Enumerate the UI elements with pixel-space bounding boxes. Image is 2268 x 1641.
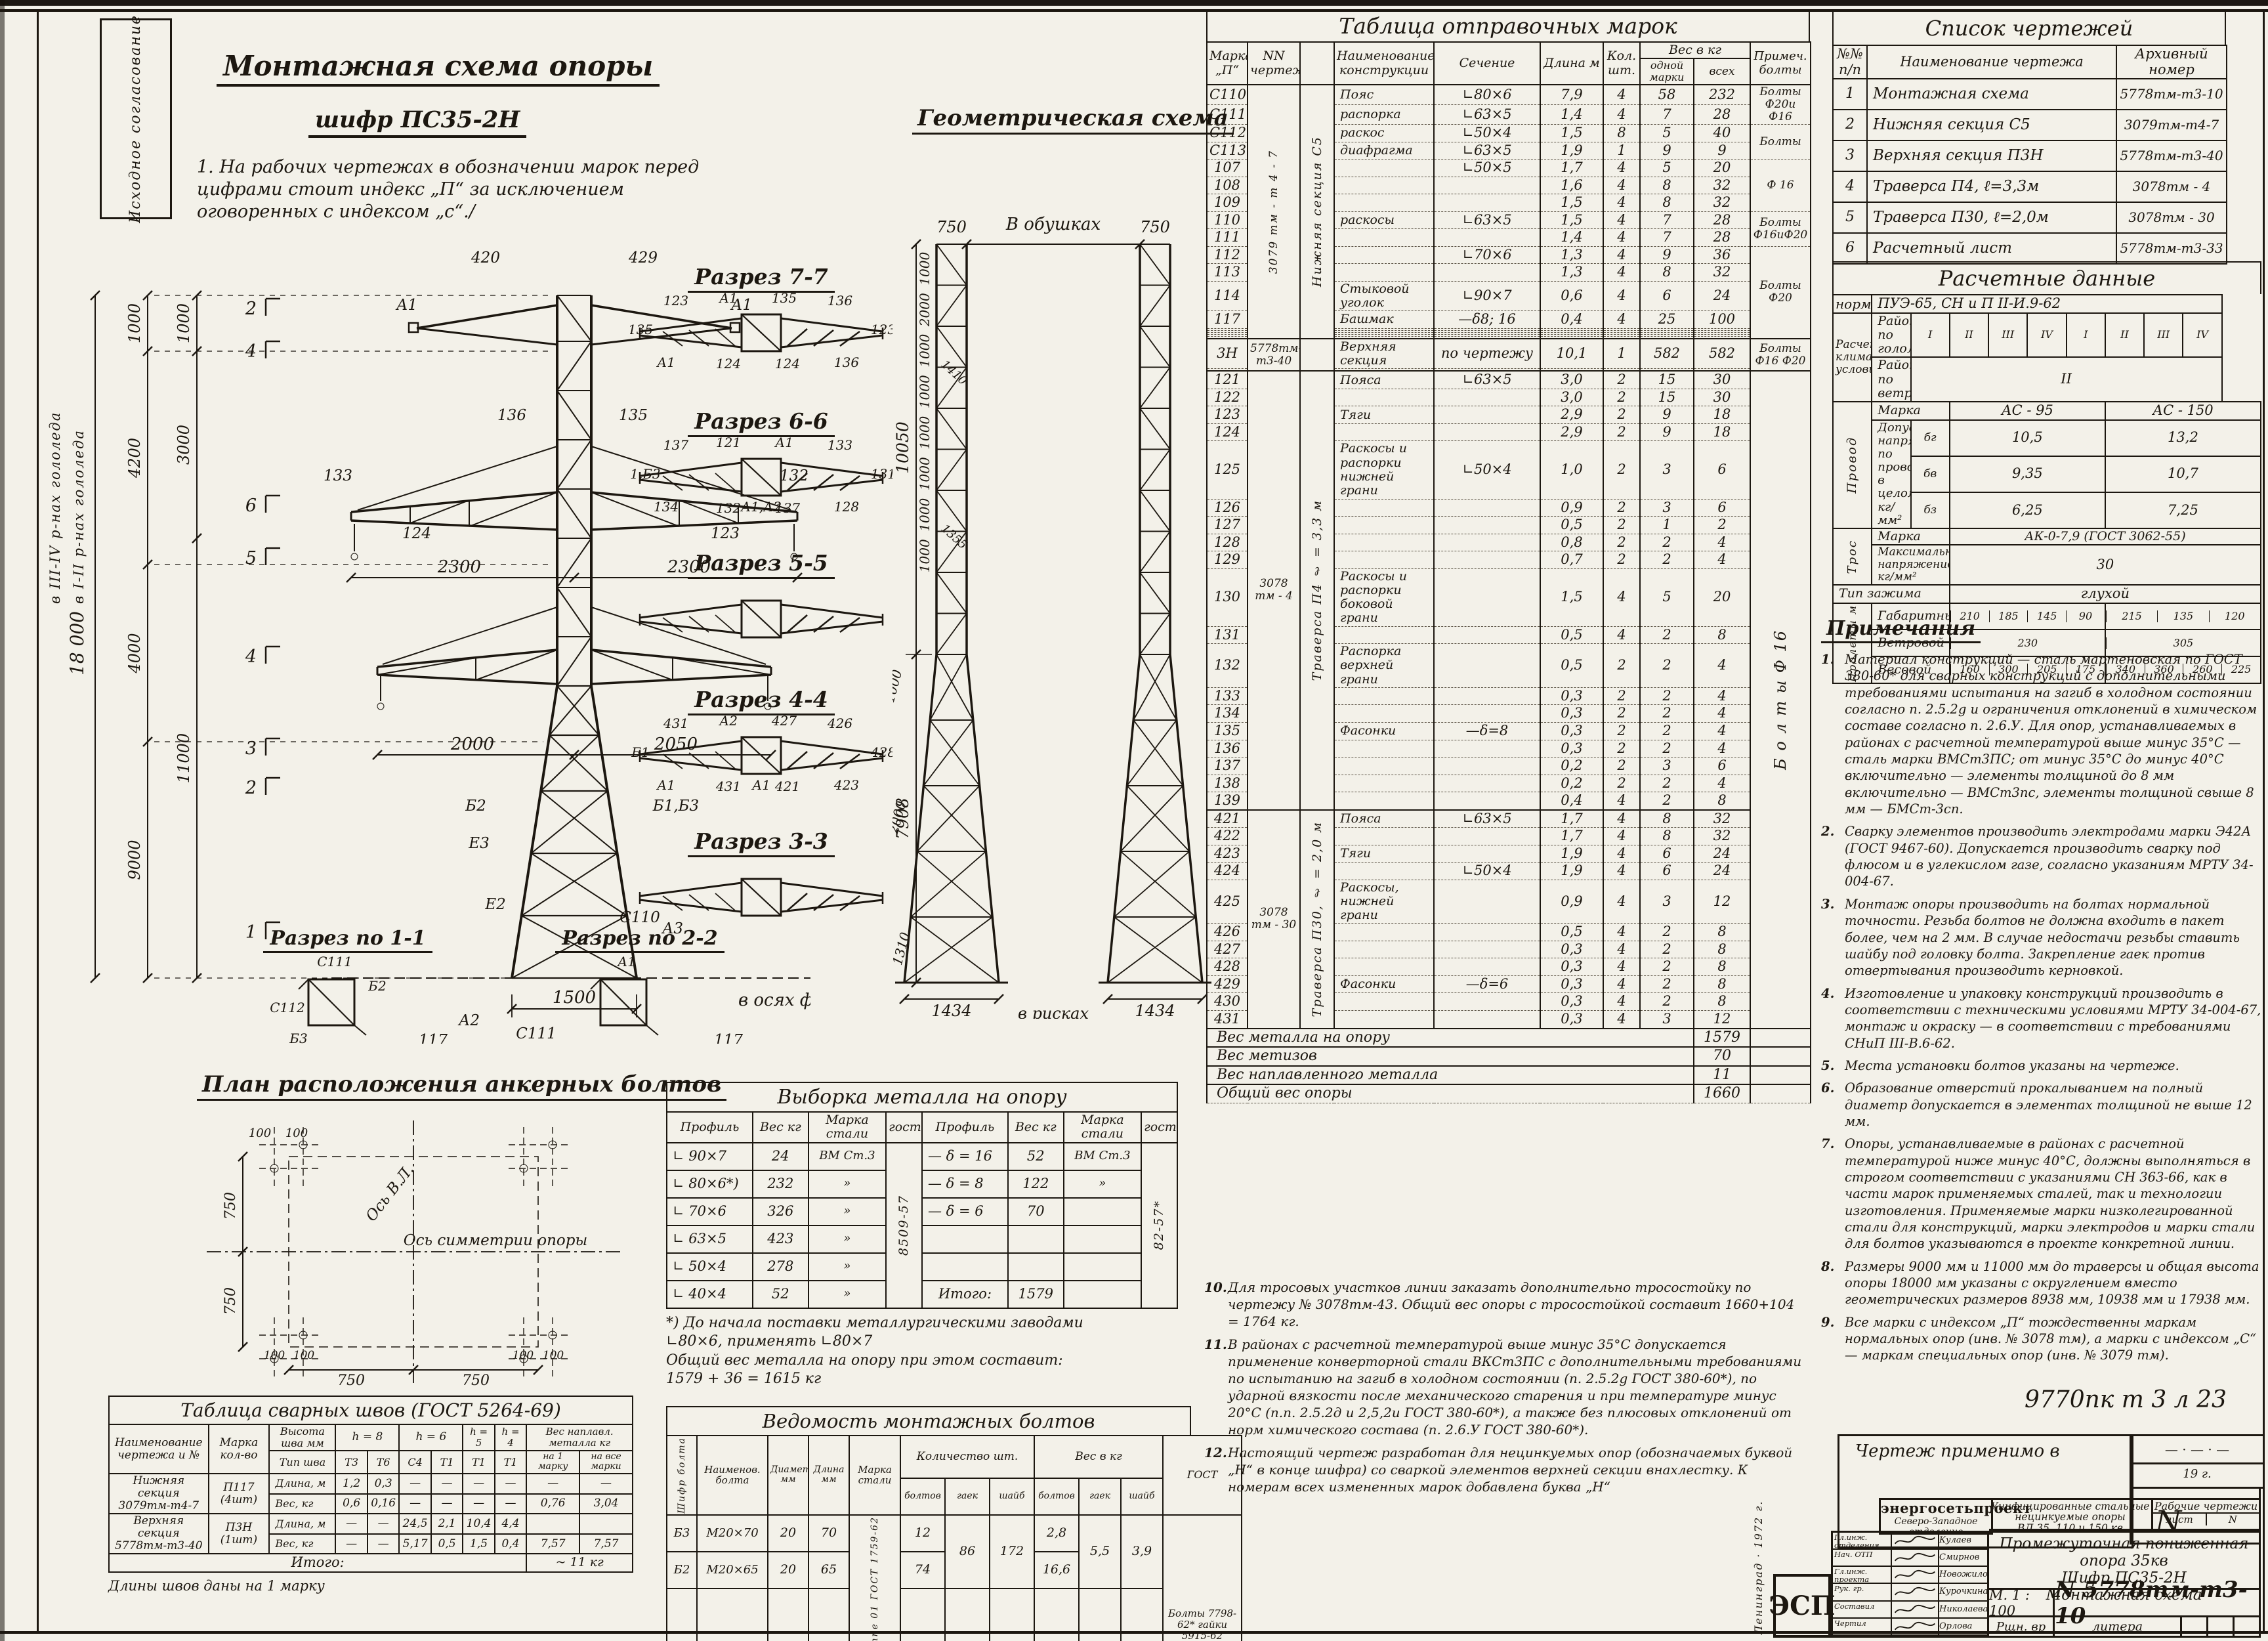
table-cell: Ф 16 bbox=[1750, 160, 1811, 212]
table-cell: на все марки bbox=[579, 1451, 633, 1474]
dim-label: 750 bbox=[1140, 218, 1170, 236]
metal-table-title: Выборка металла на опору bbox=[666, 1082, 1178, 1111]
dim-label: 1000 bbox=[917, 416, 933, 450]
table-cell: раскос bbox=[1334, 125, 1434, 142]
table-cell: 110 bbox=[1207, 211, 1248, 229]
table-cell: ВМ Ст.3 bbox=[808, 1143, 886, 1170]
dim-label: 426 bbox=[827, 715, 852, 731]
table-cell: 7,25 bbox=[2105, 492, 2261, 528]
table-cell: 0,16 bbox=[367, 1494, 399, 1514]
signature-scribble bbox=[1892, 1550, 1939, 1566]
table-cell: 70 bbox=[1694, 1047, 1750, 1066]
dim-label: А2 bbox=[718, 713, 738, 729]
dim-label: 1310 bbox=[892, 930, 913, 967]
table-row: А2М16×551655522505006,18,45,7 bbox=[667, 1588, 1242, 1641]
table-cell: 5 bbox=[1640, 160, 1694, 177]
table-cell: III bbox=[1988, 313, 2027, 358]
table-cell: 2 bbox=[1603, 517, 1640, 534]
table-cell: 4 bbox=[1603, 281, 1640, 311]
table-cell: 107 bbox=[1207, 160, 1248, 177]
summary-row: Вес наплавленного металла11 bbox=[1207, 1066, 1811, 1085]
table-cell: 4 bbox=[1603, 160, 1640, 177]
table-cell: 7 bbox=[1640, 105, 1694, 125]
table-cell: 100 bbox=[1694, 311, 1750, 329]
table-cell bbox=[1434, 423, 1540, 441]
dim-label: 124 bbox=[402, 525, 431, 542]
table-cell bbox=[1434, 740, 1540, 757]
table-cell: 131 bbox=[1207, 626, 1248, 644]
table-cell bbox=[1434, 499, 1540, 517]
dim-label: 135 bbox=[630, 322, 653, 337]
table-cell: гост bbox=[886, 1112, 922, 1143]
table-cell: 2 bbox=[1603, 423, 1640, 441]
dim-label: 2000 bbox=[917, 293, 933, 327]
table-cell: 2 bbox=[1603, 775, 1640, 792]
table-cell: С110 bbox=[1207, 85, 1248, 105]
table-cell: 3Н bbox=[1207, 339, 1248, 369]
dim-label: 132 bbox=[716, 500, 741, 516]
table-cell: 425 bbox=[1207, 880, 1248, 924]
table-cell: 108 bbox=[1207, 177, 1248, 194]
table-cell: 121 bbox=[1207, 371, 1248, 389]
table-cell: 4 bbox=[1603, 924, 1640, 941]
table-cell: 65 bbox=[808, 1552, 849, 1588]
table-cell: Б о л т ы Ф 16 bbox=[1750, 371, 1811, 1028]
table-cell: 74 bbox=[900, 1552, 945, 1588]
litera-sub3 bbox=[2235, 1617, 2261, 1638]
table-cell bbox=[1334, 757, 1434, 775]
table-cell: ∟ 90×7 bbox=[667, 1143, 753, 1170]
metal-table-wrap: Выборка металла на опору ПрофильВес кгМа… bbox=[666, 1082, 1178, 1389]
dim-label: 124 bbox=[716, 356, 741, 372]
table-cell: 2 bbox=[1640, 626, 1694, 644]
table-cell: — bbox=[431, 1474, 463, 1494]
notes-title: Примечания bbox=[1821, 617, 2262, 643]
sheet-n: N bbox=[2207, 1514, 2259, 1525]
table-cell: Распорка верхней грани bbox=[1334, 644, 1434, 688]
table-cell: ∟63×5 bbox=[1434, 211, 1540, 229]
section-block: Разрез 3-3 bbox=[630, 828, 892, 939]
table-cell: 0,3 bbox=[1540, 722, 1603, 740]
table-cell: 2 bbox=[1640, 705, 1694, 723]
table-cell: Профиль bbox=[922, 1112, 1008, 1143]
table-cell: II bbox=[1911, 357, 2222, 402]
table-cell: 8 bbox=[1640, 264, 1694, 282]
cipher-title: шифр ПС35-2Н bbox=[308, 106, 526, 138]
note-item: 12.Настоящий чертеж разработан для нецин… bbox=[1204, 1444, 1805, 1495]
table-cell: 0,76 bbox=[526, 1494, 579, 1514]
table-cell: болтов bbox=[900, 1478, 945, 1515]
table-cell: Трос bbox=[1833, 528, 1872, 585]
section-block: Разрез 6-6137121А1133134132137128Б1,Б313… bbox=[630, 408, 892, 519]
table-row: ∟ 63×5423» bbox=[667, 1225, 1177, 1253]
table-cell: 4 bbox=[1694, 722, 1750, 740]
table-cell bbox=[1434, 177, 1540, 194]
table-row: Верхняя секция 5778тм-т3-40П3Н (1шт)Длин… bbox=[109, 1514, 633, 1534]
dim-label: Б2 bbox=[465, 798, 486, 815]
dim-label: 2 bbox=[245, 299, 257, 319]
table-cell: 1 bbox=[1603, 339, 1640, 369]
table-cell: 3,9 bbox=[1121, 1515, 1163, 1588]
table-cell: 2 bbox=[1640, 775, 1694, 792]
table-cell: по чертежу bbox=[1434, 339, 1540, 369]
table-cell bbox=[1434, 626, 1540, 644]
table-cell: h = 6 bbox=[399, 1424, 463, 1451]
table-cell: болтов bbox=[1034, 1478, 1079, 1515]
table-cell bbox=[1750, 1029, 1811, 1048]
table-cell: 1,4 bbox=[1540, 105, 1603, 125]
table-cell bbox=[1334, 705, 1434, 723]
table-cell bbox=[1434, 828, 1540, 845]
geometric-title: Геометрическая схема bbox=[912, 105, 1234, 135]
table-cell: АС - 150 bbox=[2105, 402, 2261, 420]
table-cell: Длина, м bbox=[269, 1474, 335, 1494]
table-cell: 126 bbox=[1207, 499, 1248, 517]
table-cell: 4 bbox=[1603, 246, 1640, 264]
table-row: 1Монтажная схема5778тм-т3-10 bbox=[1833, 79, 2227, 110]
table-cell: Допускаемые напряжения по проводу в цело… bbox=[1872, 420, 1910, 528]
table-cell: 2 bbox=[1640, 534, 1694, 551]
table-cell: 18 bbox=[1694, 423, 1750, 441]
table-cell: 2 bbox=[1603, 757, 1640, 775]
dim-label: Б3 bbox=[289, 1031, 307, 1046]
table-cell bbox=[1434, 924, 1540, 941]
shipping-table-title: Таблица отправочных марок bbox=[1206, 9, 1810, 41]
table-cell: 9 bbox=[1640, 246, 1694, 264]
table-cell: 0,5 bbox=[1540, 924, 1603, 941]
table-cell: 128 bbox=[1207, 534, 1248, 551]
org-box: энергосетьпроект Северо-Западное отделен… bbox=[1879, 1498, 1993, 1535]
dim-label: 2300 bbox=[437, 557, 481, 577]
table-row: 4213078 тм - 30Траверса П30, ℓ = 2,0 мПо… bbox=[1207, 810, 1811, 828]
dim-label: Е2 bbox=[484, 896, 505, 913]
table-cell: Район по ветру bbox=[1872, 357, 1910, 402]
table-cell: ∟ 63×5 bbox=[667, 1225, 753, 1253]
table-cell: 4 bbox=[1603, 626, 1640, 644]
org-name: энергосетьпроект bbox=[1881, 1500, 1991, 1516]
table-cell: 6 bbox=[1640, 845, 1694, 863]
drawings-list-title: Список чертежей bbox=[1832, 11, 2226, 45]
dim-label: 100 bbox=[264, 1349, 285, 1362]
table-cell: 7,57 bbox=[579, 1534, 633, 1554]
table-cell: №№ п/п bbox=[1833, 45, 1867, 79]
frame-left bbox=[37, 9, 39, 1631]
table-cell bbox=[1334, 423, 1434, 441]
table-cell: 10,7 bbox=[2105, 456, 2261, 492]
table-cell: Траверса П30, ℓ = 2,0 м bbox=[1300, 810, 1334, 1029]
table-cell: А2 bbox=[667, 1588, 697, 1641]
table-cell: Шифр болта bbox=[667, 1436, 697, 1515]
table-cell: гост bbox=[1141, 1112, 1177, 1143]
table-cell: 136 bbox=[1207, 740, 1248, 757]
table-cell: 2 bbox=[1603, 389, 1640, 406]
dim-label: 1000 bbox=[917, 539, 933, 572]
table-cell: Примеч. болты bbox=[1750, 42, 1811, 85]
table-cell: ГОСТ bbox=[1163, 1436, 1242, 1515]
table-cell: 2 bbox=[1640, 941, 1694, 958]
table-cell: 2 bbox=[1640, 924, 1694, 941]
table-cell: Траверса П4, ℓ=3,3м bbox=[1867, 171, 2116, 202]
signature-grid: Гл.инж. отделенияКулаевНач. ОТПСмирновГл… bbox=[1831, 1531, 1989, 1638]
table-cell: 3079 тм - т 4 - 7 bbox=[1248, 85, 1300, 339]
table-cell: 1,6 bbox=[1540, 177, 1603, 194]
work-box: Рабочие чертежи лист N bbox=[2153, 1498, 2261, 1531]
table-cell: на 1 марку bbox=[526, 1451, 579, 1474]
dim-label: 2000 bbox=[450, 735, 494, 754]
table-cell: Нижняя секция 3079тм-т4-7 bbox=[109, 1474, 209, 1514]
table-cell bbox=[1434, 644, 1540, 688]
table-cell: 4 bbox=[1603, 311, 1640, 329]
table-cell: IV bbox=[2183, 313, 2221, 358]
table-cell: II bbox=[2105, 313, 2144, 358]
table-cell: Вес кг bbox=[753, 1112, 808, 1143]
table-cell: Вес в кг bbox=[1034, 1436, 1163, 1478]
dim-label: 750 bbox=[337, 1373, 365, 1389]
table-cell: 11 bbox=[1694, 1066, 1750, 1085]
table-row: 5Траверса П30, ℓ=2,0м3078тм - 30 bbox=[1833, 202, 2227, 233]
table-cell: Вес, кг bbox=[269, 1534, 335, 1554]
table-cell: 1,0 bbox=[1540, 441, 1603, 499]
dim-label: 3 bbox=[245, 738, 257, 759]
table-cell: 1,3 bbox=[1540, 246, 1603, 264]
table-cell: 0,5 bbox=[1540, 626, 1603, 644]
table-cell: 4 bbox=[1694, 551, 1750, 569]
dim-label: 427 bbox=[771, 713, 797, 729]
dim-label: 428 bbox=[870, 744, 892, 760]
shipping-table-wrap: Таблица отправочных марок Марка „П“NN че… bbox=[1206, 9, 1810, 1103]
table-cell: 3078 тм - 4 bbox=[1248, 371, 1300, 809]
table-cell: Тип зажима bbox=[1833, 585, 1950, 603]
table-cell: 5,5 bbox=[1079, 1515, 1121, 1588]
table-cell: Длина мм bbox=[808, 1436, 849, 1515]
table-cell: 2 bbox=[1640, 792, 1694, 810]
table-cell: 0,3 bbox=[1540, 975, 1603, 993]
table-cell: 0,2 bbox=[1540, 757, 1603, 775]
table-cell: 0,3 bbox=[1540, 687, 1603, 705]
table-cell: Пояса bbox=[1334, 371, 1434, 389]
table-cell bbox=[1334, 863, 1434, 880]
table-cell bbox=[1434, 1011, 1540, 1029]
table-cell: 4 bbox=[1603, 229, 1640, 247]
dim-label: 100 bbox=[293, 1349, 315, 1362]
table-cell: 1,9 bbox=[1540, 863, 1603, 880]
table-cell: 10,5 bbox=[1950, 420, 2105, 456]
table-cell: 2,9 bbox=[1540, 423, 1603, 441]
table-cell: 24 bbox=[1694, 863, 1750, 880]
table-cell: 0,3 bbox=[1540, 705, 1603, 723]
table-cell bbox=[1434, 845, 1540, 863]
table-cell bbox=[1300, 339, 1334, 372]
note-item: 8.Размеры 9000 мм и 11000 мм до траверсы… bbox=[1821, 1258, 2262, 1308]
table-cell: ~ 11 кг bbox=[526, 1554, 633, 1572]
scan-edge-left bbox=[0, 0, 5, 1641]
table-cell: 4 bbox=[1603, 993, 1640, 1011]
table-cell: I bbox=[1911, 313, 1950, 358]
table-row: ∟ 80×6*)232»— δ = 8122» bbox=[667, 1170, 1177, 1198]
table-cell: 5778тм-т3-40 bbox=[2116, 140, 2227, 171]
table-cell: Марка bbox=[1872, 528, 1950, 545]
table-cell: 6,25 bbox=[1950, 492, 2105, 528]
table-cell: Вес, кг bbox=[269, 1494, 335, 1514]
table-cell: Болты bbox=[1750, 125, 1811, 160]
table-row: Нижняя секция 3079тм-т4-7П117 (4шт)Длина… bbox=[109, 1474, 633, 1494]
table-cell: 70 bbox=[808, 1515, 849, 1552]
dim-label: А1 bbox=[656, 354, 675, 370]
table-cell: — bbox=[463, 1474, 494, 1494]
table-cell: 122 bbox=[1008, 1170, 1064, 1198]
table-cell: — δ = 8 bbox=[922, 1170, 1008, 1198]
notes-bottom: 10.Для тросовых участков линии заказать … bbox=[1204, 1279, 1805, 1501]
esp-logo: ЭСП bbox=[1773, 1574, 1831, 1638]
table-cell bbox=[1434, 534, 1540, 551]
welds-table-wrap: Таблица сварных швов (ГОСТ 5264-69) Наим… bbox=[108, 1396, 633, 1594]
table-cell: 16,6 bbox=[1034, 1552, 1079, 1588]
table-cell: Т1 bbox=[463, 1451, 494, 1474]
table-cell: Болты Ф20 bbox=[1750, 246, 1811, 339]
table-cell: 8 bbox=[1694, 975, 1750, 993]
table-cell: 7,57 bbox=[526, 1534, 579, 1554]
table-cell: распорка bbox=[1334, 105, 1434, 125]
table-cell: Стыковой уголок bbox=[1334, 281, 1434, 311]
anchor-plan: 750750750750100100100100100100Ось симмет… bbox=[197, 1111, 630, 1393]
table-cell: 123 bbox=[1207, 406, 1248, 424]
table-cell: 138 bbox=[1207, 775, 1248, 792]
section-block: Разрез 4-4431А2427426А1431421423Б1428А1 bbox=[630, 687, 892, 798]
dim-label: 2 bbox=[245, 778, 257, 798]
table-cell bbox=[1064, 1281, 1141, 1308]
table-cell: 30 bbox=[1694, 389, 1750, 406]
table-cell: Болты Ф16иФ20 bbox=[1750, 211, 1811, 246]
table-cell: 4 bbox=[1603, 568, 1640, 626]
table-cell: 0,3 bbox=[1540, 740, 1603, 757]
page-ref: 9770пк т 3 л 23 bbox=[2025, 1386, 2227, 1413]
table-cell: 1,5 bbox=[1540, 568, 1603, 626]
table-cell: шайб bbox=[990, 1478, 1034, 1515]
dim-label: 136 bbox=[834, 354, 859, 370]
table-cell: Болты 7798-62* гайки 5915-62 шайбы 11371… bbox=[1163, 1515, 1242, 1641]
table-cell: 4,4 bbox=[495, 1514, 526, 1534]
signature-row: Рук. гр.Курочкина bbox=[1833, 1584, 1987, 1601]
dim-label: 100 bbox=[543, 1349, 564, 1362]
table-cell: 2 bbox=[1603, 441, 1640, 499]
table-cell: 0,4 bbox=[1540, 792, 1603, 810]
table-cell bbox=[1300, 42, 1334, 85]
dim-label: А1 bbox=[751, 777, 770, 793]
table-cell: 4 bbox=[1603, 264, 1640, 282]
dim-label: А2 bbox=[457, 1012, 480, 1029]
table-cell: ПУЭ-65, СН и П II-И.9-62 bbox=[1872, 295, 2221, 313]
table-cell: 4 bbox=[1603, 958, 1640, 976]
table-cell bbox=[1334, 389, 1434, 406]
table-cell: ∟ 50×4 bbox=[667, 1253, 753, 1281]
table-cell: 2 bbox=[1640, 993, 1694, 1011]
dim-label: 1000 bbox=[917, 457, 933, 490]
table-cell bbox=[1434, 880, 1540, 924]
table-cell: 2 bbox=[1694, 517, 1750, 534]
table-cell: 4 bbox=[1603, 792, 1640, 810]
signature-row: Гл.инж. проектаНовожилов bbox=[1833, 1567, 1987, 1584]
dim-label: А1,А2 bbox=[740, 499, 782, 515]
table-cell: 4 bbox=[1603, 1011, 1640, 1029]
table-cell: 8 bbox=[1640, 194, 1694, 212]
table-cell: 6 bbox=[1833, 233, 1867, 264]
table-cell: 423 bbox=[753, 1225, 808, 1253]
table-cell bbox=[1334, 229, 1434, 247]
table-cell: 9 bbox=[1640, 423, 1694, 441]
table-cell: 4 bbox=[1694, 705, 1750, 723]
table-cell: гаек bbox=[945, 1478, 990, 1515]
table-cell: 117 bbox=[1207, 311, 1248, 329]
signature-row: Нач. ОТПСмирнов bbox=[1833, 1550, 1987, 1567]
calc-table-title: Расчетные данные bbox=[1832, 261, 2261, 294]
table-cell: 109 bbox=[1207, 194, 1248, 212]
dim-label: 11000 bbox=[175, 733, 193, 783]
table-cell: 2 bbox=[1603, 722, 1640, 740]
dim-label: С111 bbox=[317, 954, 352, 970]
table-cell: 5778тм-т3-33 bbox=[2116, 233, 2227, 264]
table-cell: Наименование конструкции bbox=[1334, 42, 1434, 85]
table-cell: 4 bbox=[1603, 880, 1640, 924]
note-item: 2.Сварку элементов производить электрода… bbox=[1821, 823, 2262, 889]
note-item: 11.В районах с расчетной температурой вы… bbox=[1204, 1336, 1805, 1438]
project-line2: нецинкуемые опоры bbox=[1989, 1512, 2151, 1522]
dim-label: А1 bbox=[656, 777, 675, 793]
table-cell: 55 bbox=[808, 1588, 849, 1641]
table-cell: 52 bbox=[900, 1588, 945, 1641]
table-cell: I bbox=[2067, 313, 2105, 358]
table-cell: 114 bbox=[1207, 281, 1248, 311]
table-cell: С112 bbox=[1207, 125, 1248, 142]
table-cell: 24,5 bbox=[399, 1514, 430, 1534]
table-cell: h = 4 bbox=[495, 1424, 526, 1451]
dim-label: в осях фундамента bbox=[738, 991, 810, 1010]
table-row: 6Расчетный лист5778тм-т3-33 bbox=[1833, 233, 2227, 264]
table-cell: 12 bbox=[900, 1515, 945, 1552]
table-cell: 134 bbox=[1207, 705, 1248, 723]
table-cell bbox=[1334, 177, 1434, 194]
table-cell: 2 bbox=[1640, 644, 1694, 688]
table-cell bbox=[1064, 1198, 1141, 1225]
table-cell: 0,7 bbox=[1540, 551, 1603, 569]
table-cell: 125 bbox=[1207, 441, 1248, 499]
table-cell: Длина м bbox=[1540, 42, 1603, 85]
table-cell: Ст.3 кп по подгруппе 01 ГОСТ 1759-62 bbox=[849, 1515, 900, 1641]
summary-row: Общий вес опоры1660 bbox=[1207, 1084, 1811, 1103]
table-cell: 32 bbox=[1694, 810, 1750, 828]
table-cell: 137 bbox=[1207, 757, 1248, 775]
table-cell: 124 bbox=[1207, 423, 1248, 441]
table-cell: 8 bbox=[1694, 792, 1750, 810]
table-cell: Раскосы и распорки боковой грани bbox=[1334, 568, 1434, 626]
dim-label: 1355 bbox=[938, 522, 970, 552]
table-cell: Верхняя секция 5778тм-т3-40 bbox=[109, 1514, 209, 1554]
dim-label: С112 bbox=[270, 1000, 304, 1015]
table-cell: — δ = 6 bbox=[922, 1198, 1008, 1225]
frame-right bbox=[2263, 9, 2265, 1631]
table-cell: —δ8; 16 bbox=[1434, 311, 1540, 329]
table-cell bbox=[1434, 687, 1540, 705]
dim-label: 3000 bbox=[175, 425, 193, 465]
table-cell bbox=[1434, 993, 1540, 1011]
table-cell: 4 bbox=[1833, 171, 1867, 202]
small-section-block: Разрез по 1-1С111Б2С112Б3 bbox=[249, 927, 446, 1048]
signature-scribble bbox=[1892, 1567, 1939, 1583]
table-cell: Провод bbox=[1833, 402, 1872, 528]
table-cell: ∟50×4 bbox=[1434, 125, 1540, 142]
table-cell: 172 bbox=[990, 1515, 1034, 1588]
table-cell: 1 bbox=[1603, 142, 1640, 160]
dim-label: А1 bbox=[395, 297, 417, 314]
